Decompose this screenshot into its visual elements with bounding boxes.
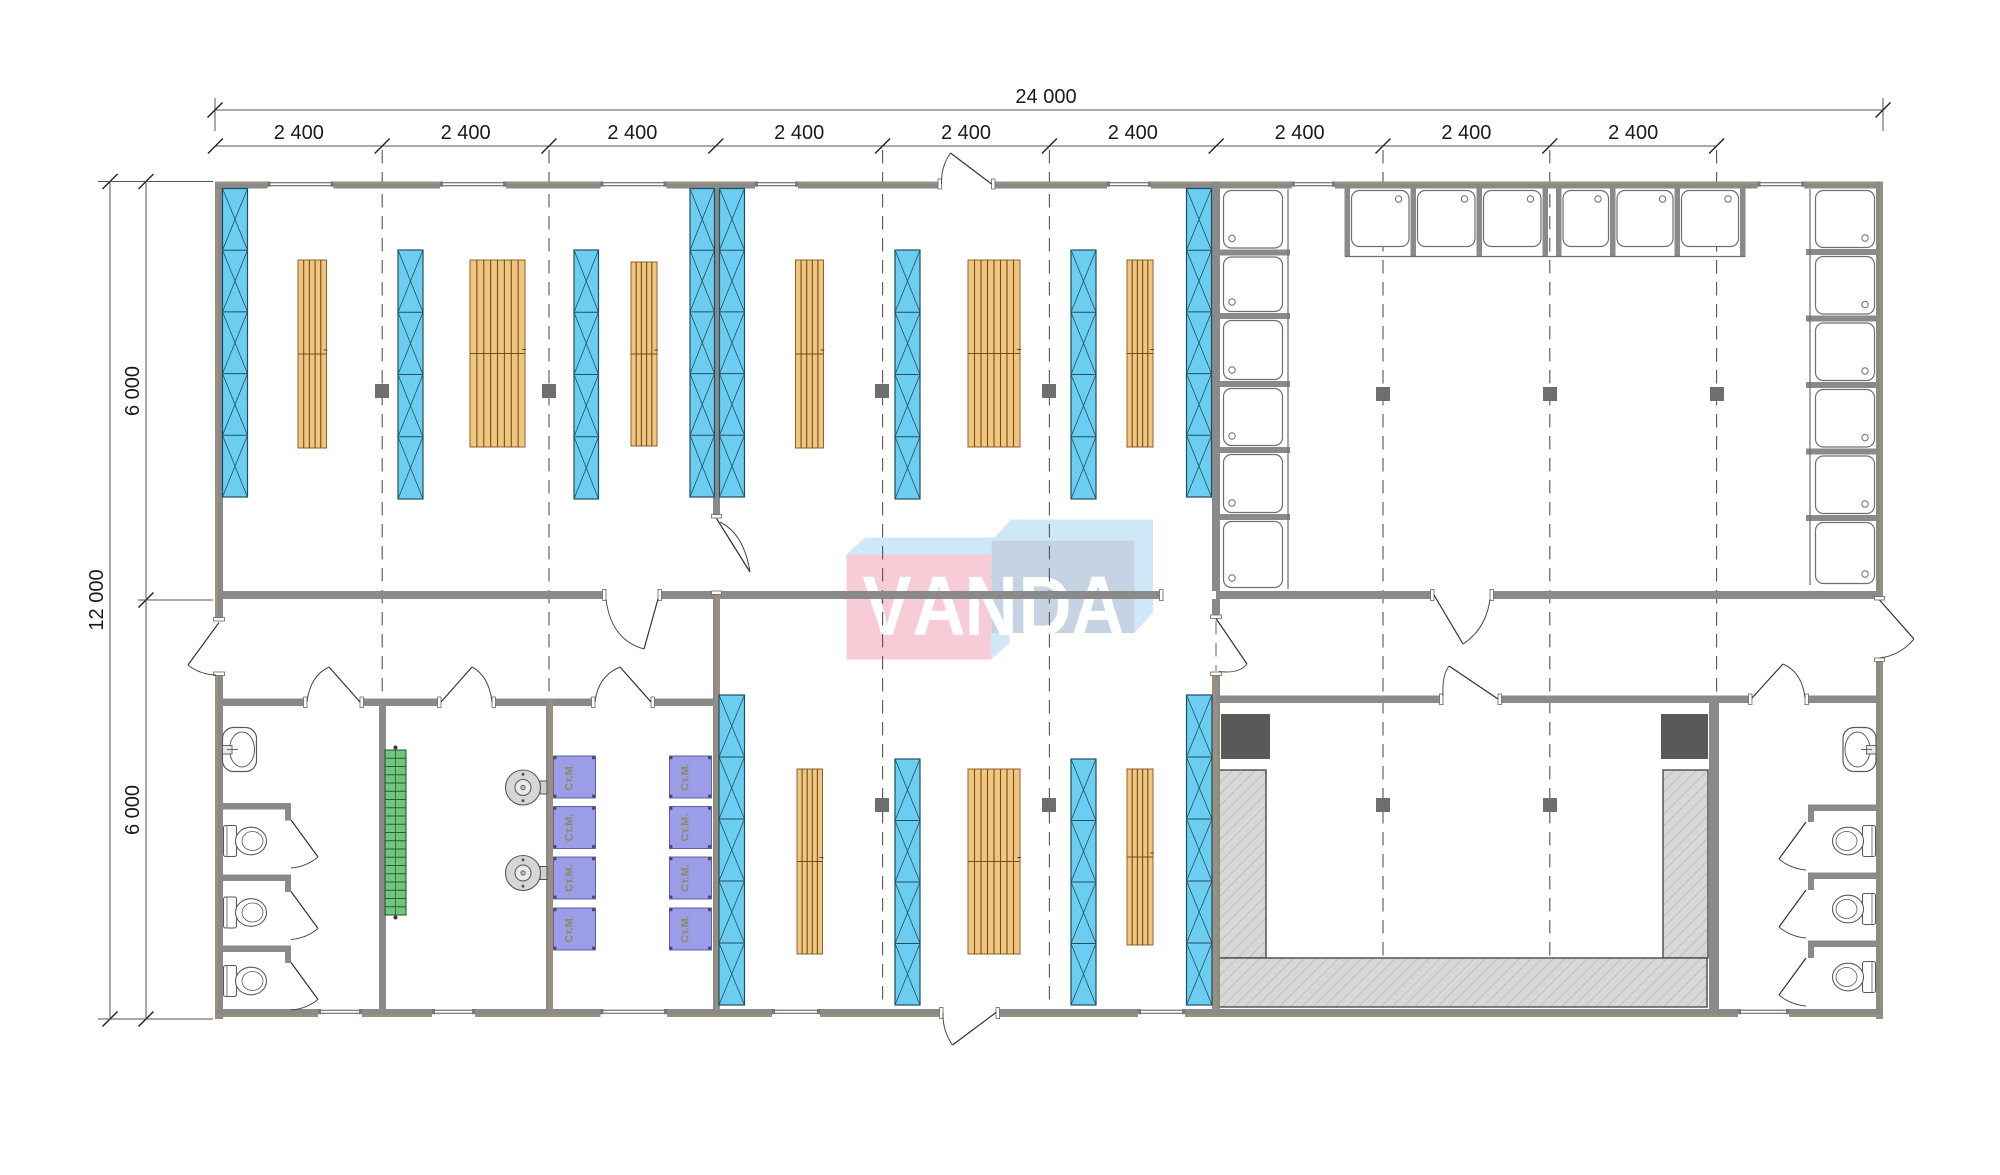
svg-text:Ст.М.: Ст.М.	[680, 763, 692, 791]
svg-text:V: V	[862, 559, 912, 653]
svg-text:2 400: 2 400	[441, 122, 491, 144]
svg-text:2 400: 2 400	[941, 122, 991, 144]
svg-text:2 400: 2 400	[1441, 122, 1491, 144]
svg-text:24 000: 24 000	[1015, 86, 1076, 108]
svg-text:12 000: 12 000	[86, 569, 108, 630]
svg-text:6 000: 6 000	[122, 785, 144, 835]
svg-text:6 000: 6 000	[122, 366, 144, 416]
svg-text:Ст.М.: Ст.М.	[680, 915, 692, 943]
svg-text:2 400: 2 400	[1108, 122, 1158, 144]
svg-text:2 400: 2 400	[1608, 122, 1658, 144]
svg-text:Ст.М.: Ст.М.	[564, 864, 576, 892]
svg-text:Ст.М.: Ст.М.	[680, 814, 692, 842]
svg-text:Ст.М.: Ст.М.	[680, 864, 692, 892]
svg-text:D: D	[1018, 559, 1071, 653]
svg-text:A: A	[912, 559, 965, 653]
svg-text:Ст.М.: Ст.М.	[564, 814, 576, 842]
svg-text:2 400: 2 400	[274, 122, 324, 144]
svg-text:Ст.М.: Ст.М.	[564, 915, 576, 943]
svg-text:2 400: 2 400	[607, 122, 657, 144]
svg-text:2 400: 2 400	[774, 122, 824, 144]
svg-text:N: N	[964, 559, 1017, 653]
svg-text:2 400: 2 400	[1275, 122, 1325, 144]
svg-text:Ст.М.: Ст.М.	[564, 763, 576, 791]
svg-text:A: A	[1071, 559, 1124, 653]
